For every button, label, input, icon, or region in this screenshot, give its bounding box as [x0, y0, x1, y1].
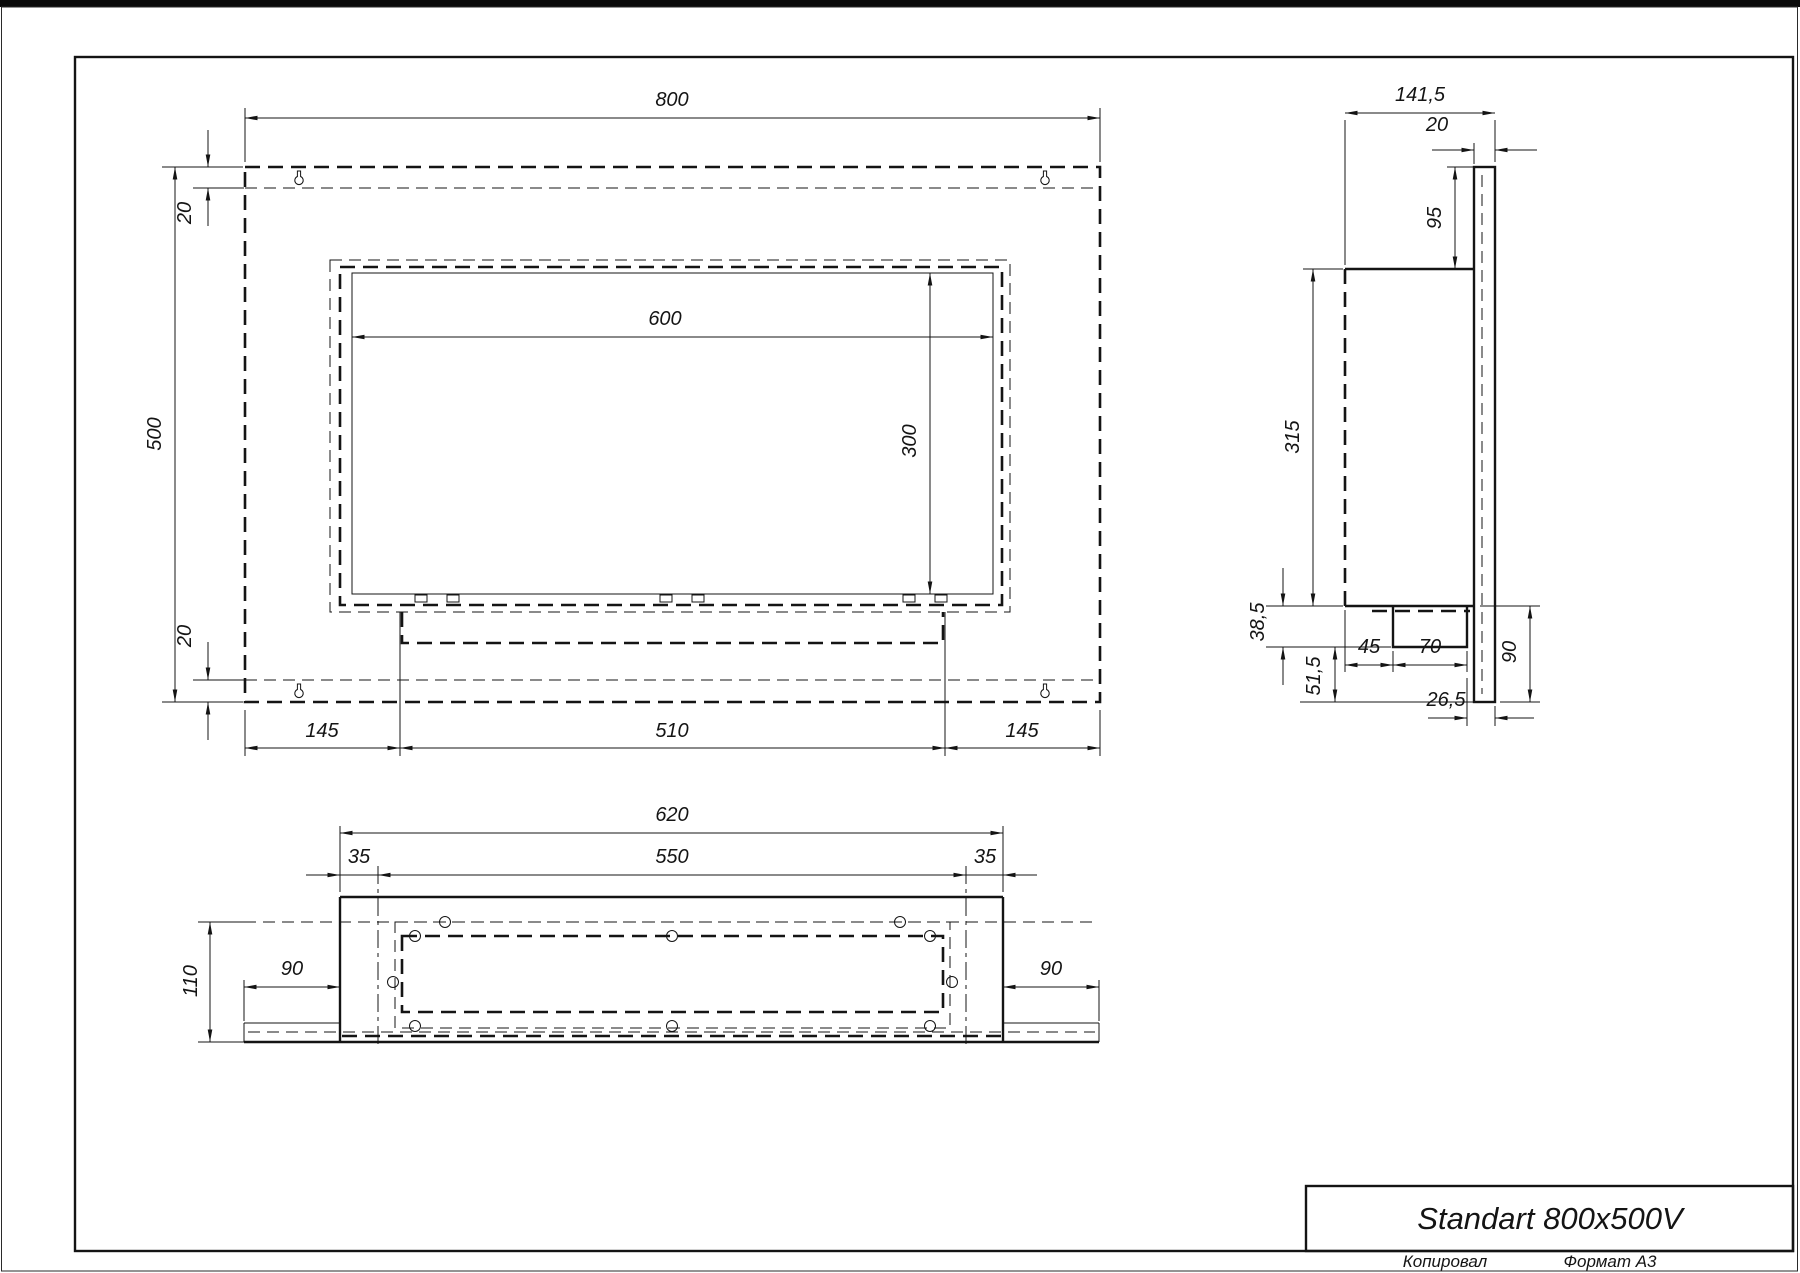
dim-label: 35: [974, 846, 997, 868]
sheet-top-bar: [0, 0, 1800, 7]
dim-label: 38,5: [1247, 602, 1269, 642]
dim-label: 20: [1425, 114, 1448, 136]
footer-copied-by: Копировал: [1403, 1252, 1488, 1271]
dim-label: 90: [1499, 641, 1521, 663]
dim-label: 45: [1358, 636, 1381, 658]
dim-label: 110: [180, 965, 202, 997]
drawing-title: Standart 800x500V: [1417, 1201, 1686, 1236]
technical-drawing: 800 500 20 20 600: [0, 0, 1800, 1273]
dim-label: 20: [174, 625, 196, 648]
dim-label: 141,5: [1395, 84, 1446, 106]
dim-label: 90: [1040, 958, 1062, 980]
dim-label: 510: [655, 720, 688, 742]
dim-label: 620: [655, 804, 688, 826]
dim-label: 550: [655, 846, 688, 868]
dim-label: 51,5: [1303, 656, 1325, 696]
dim-label: 35: [348, 846, 371, 868]
dim-label: 20: [174, 202, 196, 225]
drawing-sheet: 800 500 20 20 600: [0, 0, 1800, 1273]
footer-format: Формат А3: [1563, 1252, 1657, 1271]
dim-label: 500: [144, 417, 166, 450]
dim-label: 315: [1282, 419, 1304, 453]
dim-label: 300: [899, 424, 921, 457]
dim-label: 145: [1005, 720, 1039, 742]
dim-label: 145: [305, 720, 339, 742]
dim-label: 90: [281, 958, 303, 980]
dim-label: 600: [648, 308, 681, 330]
dim-label: 800: [655, 89, 688, 111]
dim-label: 70: [1419, 636, 1441, 658]
dim-label: 95: [1424, 206, 1446, 229]
dim-label: 26,5: [1426, 689, 1467, 711]
